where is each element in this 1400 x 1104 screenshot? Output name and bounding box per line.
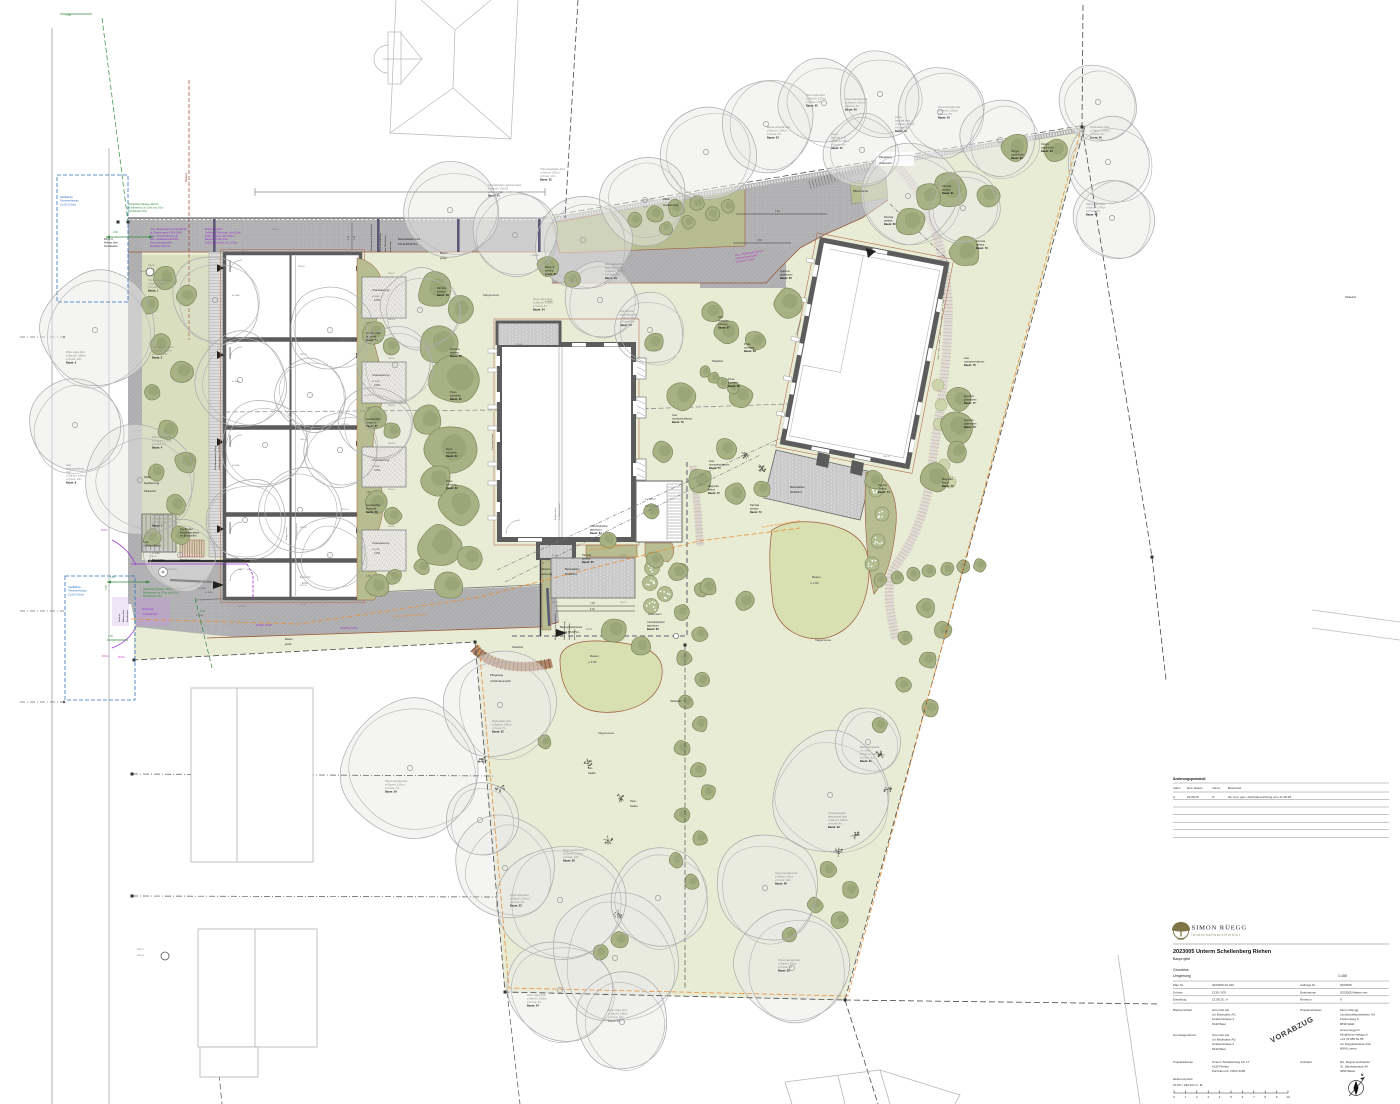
- svg-text:7.4a: 7.4a: [775, 210, 780, 213]
- svg-text:298.30: 298.30: [345, 254, 352, 256]
- svg-text:1.50: 1.50: [200, 610, 205, 613]
- svg-text:Fassadenschnitt: Fassadenschnitt: [491, 434, 494, 450]
- svg-text:Beschrieb: Beschrieb: [1228, 786, 1242, 790]
- svg-text:Bauherrschaft: Bauherrschaft: [1173, 1008, 1192, 1012]
- svg-text:293.34: 293.34: [140, 271, 147, 273]
- svg-text:Sitzstufen: Sitzstufen: [152, 558, 165, 562]
- svg-text:29.08.25: 29.08.25: [1187, 795, 1199, 799]
- svg-text:über Oberflächen-: über Oberflächen-: [568, 622, 571, 640]
- svg-text:Dateinamen: Dateinamen: [1300, 990, 1317, 994]
- svg-text:2.50: 2.50: [110, 576, 115, 579]
- svg-text:∠ 2.0%: ∠ 2.0%: [232, 464, 240, 467]
- svg-text:Grösse: Grösse: [1173, 990, 1183, 994]
- svg-text:Chaussierung: Chaussierung: [372, 373, 390, 377]
- svg-text:sicherung: sicherung: [541, 572, 553, 576]
- svg-text:Betonplatten: Betonplatten: [565, 567, 580, 571]
- svg-text:287.30: 287.30: [300, 585, 307, 587]
- svg-text:Referenzpunkt: Referenzpunkt: [1173, 1077, 1193, 1081]
- svg-text:∠ 2.0%: ∠ 2.0%: [372, 548, 380, 551]
- svg-text:Boden-: Boden-: [285, 637, 294, 641]
- svg-text:Kanalisation: Kanalisation: [126, 609, 129, 622]
- svg-text:Pflanzfläche: Pflanzfläche: [853, 189, 869, 193]
- svg-text:Auftrags Nr.: Auftrags Nr.: [1300, 983, 1316, 987]
- svg-text:Architekt: Architekt: [1300, 1060, 1312, 1064]
- svg-text:Sträucher: Sträucher: [712, 359, 723, 363]
- svg-text:Hortensien: Hortensien: [648, 612, 662, 616]
- svg-text:6.20: 6.20: [590, 608, 595, 611]
- svg-text:Firma Verankerung: Firma Verankerung: [563, 621, 566, 640]
- svg-text:Lichthof: Lichthof: [645, 497, 657, 501]
- svg-text:Chaussierung: Chaussierung: [372, 541, 390, 545]
- svg-text:∠ 2.0%: ∠ 2.0%: [205, 591, 213, 594]
- svg-text:Chaussierung: Chaussierung: [372, 288, 390, 292]
- svg-text:Visum: Visum: [1212, 786, 1221, 790]
- svg-text:7.30: 7.30: [590, 602, 595, 605]
- svg-text:A: A: [1173, 795, 1175, 799]
- svg-text:298.47: 298.47: [150, 556, 157, 558]
- svg-text:290.02: 290.02: [388, 526, 395, 528]
- svg-text:Betonplatten: Betonplatten: [790, 485, 805, 489]
- svg-text:Baulinie: Baulinie: [184, 172, 188, 182]
- svg-text:R=3m: R=3m: [118, 656, 125, 659]
- svg-text:290.02: 290.02: [388, 443, 395, 445]
- svg-text:mit Betonplatten 150/300cm: mit Betonplatten 150/300cm: [218, 443, 221, 470]
- svg-text:∠ 2.0%: ∠ 2.0%: [588, 660, 597, 664]
- svg-text:1230 / 970: 1230 / 970: [1212, 990, 1227, 994]
- svg-text:2023005 Master.vwx: 2023005 Master.vwx: [1340, 990, 1368, 994]
- svg-text:Magerwiese: Magerwiese: [483, 293, 500, 297]
- svg-text:Rinne A: Rinne A: [118, 614, 121, 622]
- svg-text:Rev.-Datum: Rev.-Datum: [1187, 786, 1203, 790]
- svg-text:2.0%: 2.0%: [374, 383, 381, 387]
- svg-text:2.0%: 2.0%: [374, 551, 381, 555]
- svg-text:Umgebung: Umgebung: [1173, 974, 1191, 978]
- svg-text:Plan Nr.: Plan Nr.: [1173, 983, 1184, 987]
- svg-text:ESH: ESH: [586, 627, 593, 631]
- svg-text:Sträucher: Sträucher: [670, 699, 681, 703]
- svg-text:Wald-: Wald-: [144, 475, 151, 479]
- svg-text:+ 298.00: + 298.00: [530, 255, 539, 257]
- svg-text:mit Rindenmulch: mit Rindenmulch: [490, 679, 511, 683]
- svg-text:Rückstaute (vor Anschluss): Rückstaute (vor Anschluss): [370, 224, 373, 251]
- svg-text:parkierung: parkierung: [389, 241, 392, 252]
- svg-text:Rasen: Rasen: [590, 654, 599, 658]
- svg-text:Fluchtweg: Fluchtweg: [645, 504, 659, 508]
- svg-text:Sträucher: Sträucher: [512, 645, 523, 649]
- svg-text:Magerwiese: Magerwiese: [598, 731, 615, 735]
- svg-text:298.26: 298.26: [770, 445, 777, 447]
- svg-text:Abfluss über: Abfluss über: [122, 610, 125, 622]
- svg-text:Ortsbetonmauer: Ortsbetonmauer: [180, 558, 200, 562]
- svg-text:Zufahrt 21.0%: Zufahrt 21.0%: [340, 626, 358, 630]
- svg-text:Projektverfasser: Projektverfasser: [1300, 1008, 1322, 1012]
- svg-text:Magerwiese: Magerwiese: [815, 638, 832, 642]
- svg-text:Fluchtweg: Fluchtweg: [165, 567, 177, 571]
- svg-text:∠ 2.0%: ∠ 2.0%: [372, 380, 380, 383]
- svg-text:Stein-: Stein-: [630, 799, 637, 803]
- svg-text:288.27: 288.27: [238, 569, 245, 571]
- svg-text:Grundriss: Grundriss: [1173, 968, 1189, 972]
- svg-text:2.0%: 2.0%: [374, 468, 381, 472]
- svg-text:Rasen: Rasen: [812, 575, 821, 579]
- svg-text:287.30: 287.30: [300, 604, 307, 606]
- svg-text:1.50: 1.50: [108, 635, 113, 638]
- svg-text:290.03: 290.03: [388, 489, 395, 491]
- svg-text:50/40/3cm: 50/40/3cm: [565, 572, 577, 576]
- svg-text:2023005 Unterm Schellenberg Ri: 2023005 Unterm Schellenberg Riehen: [1173, 949, 1272, 955]
- svg-text:290.02: 290.02: [388, 358, 395, 360]
- svg-text:Pflegeweg: Pflegeweg: [879, 155, 893, 159]
- svg-text:290.10/-: 290.10/-: [341, 424, 349, 426]
- svg-text:290.03: 290.03: [388, 405, 395, 407]
- svg-text:±0.00 = 290.10m ü. M.: ±0.00 = 290.10m ü. M.: [1173, 1083, 1203, 1087]
- svg-text:Erstellung: Erstellung: [1173, 998, 1187, 1002]
- svg-text:2023005-32-010: 2023005-32-010: [1212, 983, 1234, 987]
- svg-text:+ 299.04: + 299.04: [270, 229, 279, 231]
- svg-text:294.75: 294.75: [552, 602, 559, 604]
- svg-text:1.50: 1.50: [66, 14, 71, 17]
- svg-text:chaussiert: chaussiert: [879, 161, 892, 165]
- svg-text:Erdgeschoss: Erdgeschoss: [554, 506, 557, 520]
- svg-text:parkierung: parkierung: [573, 629, 576, 640]
- svg-text:50/40/3cm: 50/40/3cm: [790, 490, 802, 494]
- svg-text:Revision: Revision: [1300, 998, 1312, 1002]
- svg-text:∠ 2.0%: ∠ 2.0%: [152, 552, 160, 555]
- svg-text:299.46: 299.46: [148, 265, 155, 267]
- svg-text:∠ 2.0%: ∠ 2.0%: [232, 380, 240, 383]
- svg-text:∠ 2.0%: ∠ 2.0%: [232, 294, 240, 297]
- svg-text:Pflegeweg: Pflegeweg: [490, 673, 504, 677]
- svg-text:Änderungsprotokoll: Änderungsprotokoll: [1173, 777, 1205, 781]
- svg-text:1:100: 1:100: [1338, 974, 1347, 978]
- svg-text:21.08.25, vf: 21.08.25, vf: [1212, 998, 1228, 1002]
- svg-text:grube: grube: [285, 642, 292, 646]
- svg-text:Wald-: Wald-: [663, 197, 670, 201]
- svg-text:294.75: 294.75: [620, 602, 627, 604]
- svg-text:Grundeigentümer: Grundeigentümer: [1173, 1033, 1196, 1037]
- svg-text:R=3m: R=3m: [102, 655, 108, 658]
- svg-text:bepflanzung: bepflanzung: [144, 481, 160, 485]
- svg-text:Metallkonstruktion (Weg): Metallkonstruktion (Weg): [214, 446, 217, 470]
- svg-text:in Schwarzbel.: in Schwarzbel.: [142, 613, 159, 616]
- svg-text:290.03: 290.03: [388, 573, 395, 575]
- svg-text:Firma Verankerung: Firma Verankerung: [379, 233, 382, 252]
- svg-text:vf: vf: [1212, 795, 1215, 799]
- svg-text:298.27: 298.27: [241, 251, 248, 253]
- svg-text:Sträucher: Sträucher: [1345, 295, 1356, 299]
- svg-text:haufen: haufen: [588, 771, 596, 775]
- svg-text:2023005: 2023005: [1340, 983, 1352, 987]
- svg-text:div. Anp. gem. Fachplanersitzu: div. Anp. gem. Fachplanersitzung vom 21.…: [1228, 795, 1291, 799]
- svg-text:290.10/-: 290.10/-: [341, 339, 349, 341]
- svg-text:haufen: haufen: [630, 804, 638, 808]
- svg-text:2.50: 2.50: [113, 231, 118, 234]
- svg-text:landschaftsarchitektur: landschaftsarchitektur: [1192, 933, 1241, 937]
- svg-text:Rückstaute (vor Anschluss): Rückstaute (vor Anschluss): [554, 613, 557, 640]
- svg-text:290.02: 290.02: [388, 273, 395, 275]
- svg-text:∠ 2.0%: ∠ 2.0%: [372, 295, 380, 298]
- svg-text:290.03: 290.03: [388, 319, 395, 321]
- svg-text:Index: Index: [1173, 786, 1181, 790]
- svg-text:293.04: 293.04: [137, 955, 144, 957]
- svg-text:SIMON RÜEGG: SIMON RÜEGG: [1192, 925, 1248, 932]
- svg-text:∠ 5.0%: ∠ 5.0%: [196, 614, 204, 617]
- svg-text:10: 10: [1286, 1095, 1290, 1099]
- svg-text:294.40: 294.40: [620, 555, 627, 557]
- svg-text:298.26: 298.26: [883, 456, 890, 458]
- svg-text:R=3m: R=3m: [101, 529, 107, 532]
- svg-text:298.30: 298.30: [298, 266, 305, 268]
- svg-text:A: A: [1340, 998, 1342, 1002]
- svg-text:8.8-11.8/6.8/7cm: 8.8-11.8/6.8/7cm: [398, 242, 417, 246]
- svg-text:298.47: 298.47: [137, 949, 144, 951]
- svg-text:bepflanzung: bepflanzung: [663, 203, 679, 207]
- svg-text:Erdgeschoss: Erdgeschoss: [285, 526, 288, 540]
- svg-text:∠ 2.0%: ∠ 2.0%: [545, 300, 553, 303]
- svg-text:Zufahrt 21.0%: Zufahrt 21.0%: [256, 623, 273, 627]
- svg-text:Betonpflastersteine: Betonpflastersteine: [398, 237, 421, 241]
- svg-text:Projektadresse: Projektadresse: [1173, 1060, 1193, 1064]
- svg-text:298.00: 298.00: [516, 344, 523, 346]
- svg-text:5.90: 5.90: [105, 585, 108, 590]
- svg-text:Vorbereich: Vorbereich: [142, 608, 155, 611]
- svg-text:über Oberflächen-: über Oberflächen-: [384, 234, 387, 252]
- svg-text:∠ 2.0%: ∠ 2.0%: [810, 581, 819, 585]
- svg-text:Absturz-: Absturz-: [541, 567, 551, 571]
- svg-text:1. Obergeschoss: 1. Obergeschoss: [558, 503, 561, 520]
- svg-text:290.10/-: 290.10/-: [341, 509, 349, 511]
- svg-text:294.40: 294.40: [552, 555, 559, 557]
- svg-text:Bauprojekt: Bauprojekt: [1173, 957, 1190, 961]
- svg-text:Sträucher: Sträucher: [144, 489, 156, 493]
- svg-text:4.3b: 4.3b: [757, 239, 762, 242]
- svg-text:2.0%: 2.0%: [374, 298, 381, 302]
- svg-text:287.30: 287.30: [238, 606, 245, 608]
- svg-text:Ast-: Ast-: [588, 766, 593, 770]
